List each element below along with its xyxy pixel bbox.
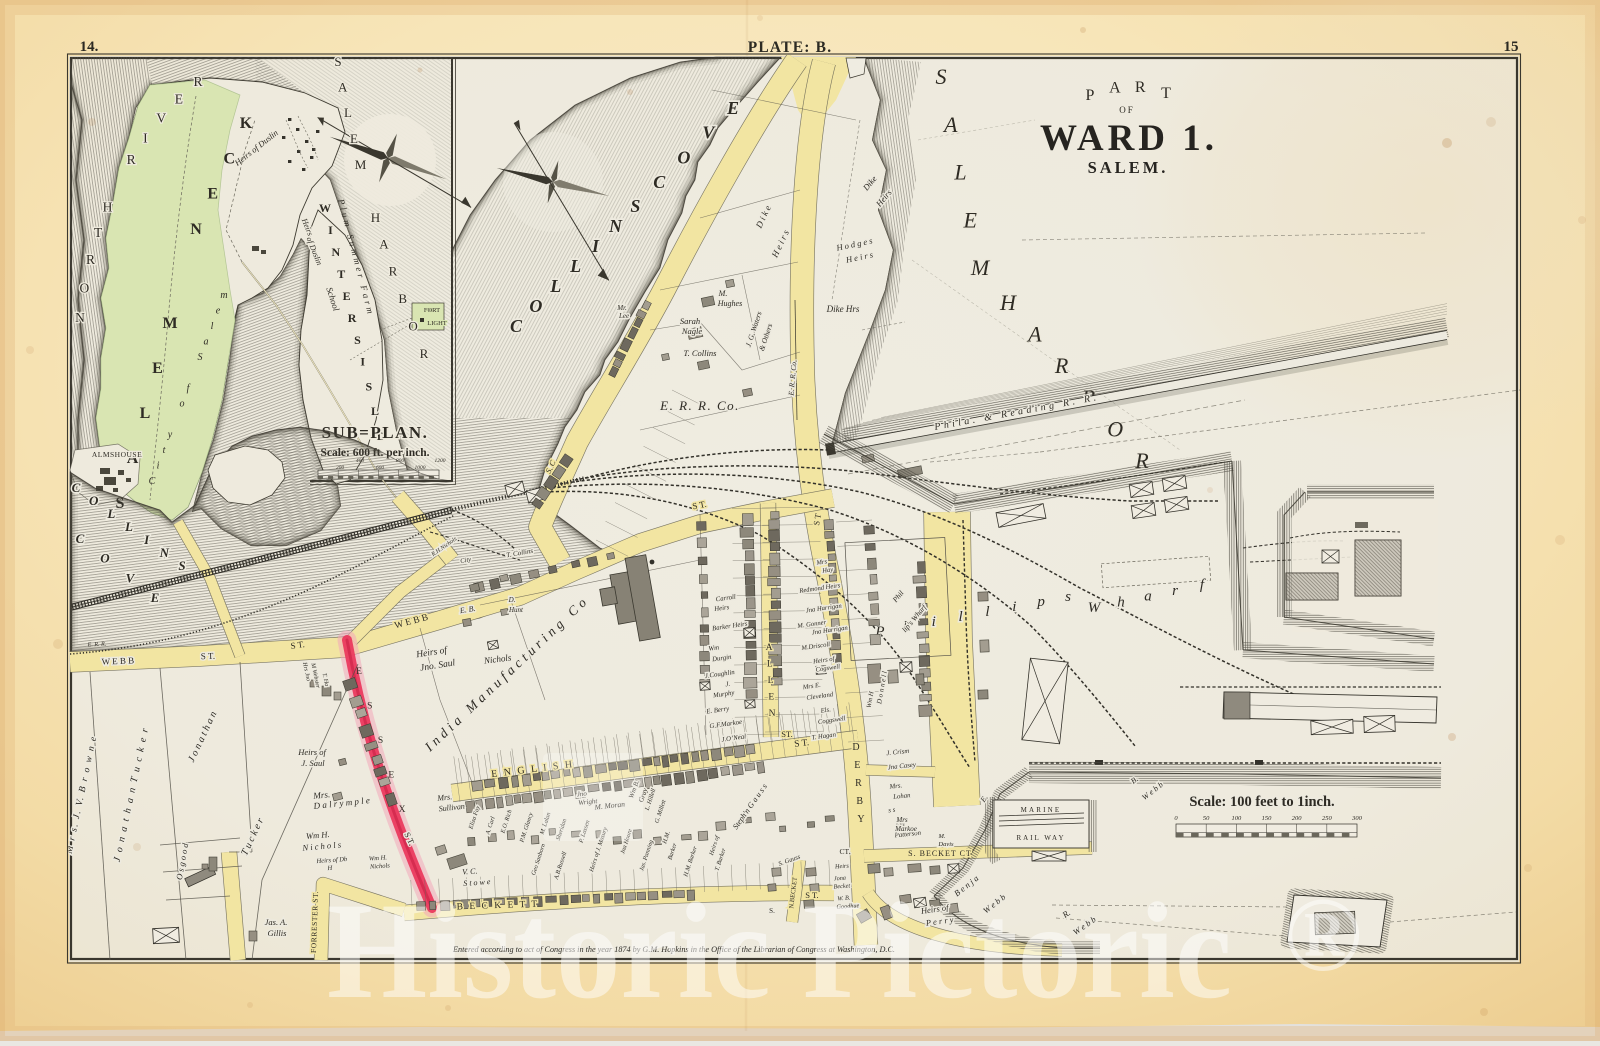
svg-text:V: V — [702, 123, 716, 143]
svg-text:M: M — [162, 315, 177, 332]
svg-text:S: S — [198, 352, 203, 363]
svg-text:A: A — [942, 112, 958, 137]
svg-text:T: T — [94, 225, 103, 240]
svg-text:C: C — [76, 531, 85, 546]
svg-text:M.: M. — [718, 289, 728, 298]
svg-text:s s: s s — [888, 807, 896, 815]
svg-text:WARD 1.: WARD 1. — [1040, 118, 1218, 159]
svg-text:50: 50 — [1203, 815, 1210, 822]
svg-text:E: E — [175, 91, 183, 106]
svg-text:OF: OF — [1119, 105, 1135, 115]
svg-text:Gillis: Gillis — [268, 928, 288, 938]
svg-text:R: R — [127, 152, 136, 167]
svg-text:S: S — [334, 54, 341, 69]
svg-text:300: 300 — [1351, 815, 1363, 822]
svg-text:y: y — [167, 430, 173, 441]
svg-text:h: h — [1117, 594, 1125, 610]
svg-text:i: i — [932, 614, 936, 630]
svg-text:150: 150 — [1262, 815, 1273, 822]
svg-text:R: R — [86, 252, 95, 267]
svg-text:N: N — [769, 709, 776, 719]
svg-text:E: E — [343, 289, 351, 303]
svg-text:Mr.: Mr. — [616, 304, 627, 312]
svg-text:E: E — [768, 693, 774, 703]
svg-text:Hughes: Hughes — [717, 299, 742, 308]
svg-text:L: L — [767, 660, 773, 670]
svg-text:L: L — [371, 404, 379, 418]
svg-text:J. Saul: J. Saul — [301, 758, 325, 768]
svg-text:s: s — [1065, 589, 1071, 605]
svg-text:M.: M. — [937, 833, 945, 840]
svg-text:E. R. R.: E. R. R. — [87, 642, 107, 649]
svg-text:ALMSHOUSE: ALMSHOUSE — [92, 450, 142, 459]
svg-text:K: K — [240, 115, 253, 132]
svg-text:p: p — [1036, 594, 1045, 610]
svg-text:t: t — [163, 445, 166, 456]
svg-text:A: A — [1109, 80, 1121, 97]
svg-text:S: S — [378, 736, 383, 746]
svg-text:P: P — [1086, 87, 1095, 104]
svg-text:l: l — [958, 609, 962, 625]
svg-text:MARINE: MARINE — [1021, 806, 1062, 814]
svg-text:o: o — [180, 399, 185, 410]
svg-text:a: a — [204, 337, 209, 348]
svg-text:C: C — [653, 172, 666, 192]
svg-text:L: L — [549, 276, 561, 296]
svg-text:S T.: S T. — [201, 651, 216, 661]
svg-text:H: H — [103, 199, 113, 214]
svg-text:H: H — [326, 865, 332, 872]
svg-text:S: S — [354, 333, 361, 347]
svg-text:T: T — [1161, 85, 1171, 102]
svg-text:O: O — [677, 147, 690, 167]
svg-text:O: O — [408, 318, 417, 333]
svg-text:M: M — [970, 255, 991, 280]
svg-text:ST.: ST. — [781, 729, 792, 739]
svg-text:Davis: Davis — [937, 841, 954, 848]
svg-text:O: O — [80, 280, 90, 295]
svg-text:T: T — [337, 267, 345, 281]
svg-text:R: R — [389, 264, 398, 279]
svg-text:D.: D. — [508, 596, 516, 604]
svg-text:S: S — [366, 379, 373, 393]
svg-text:i: i — [157, 461, 160, 472]
svg-text:R: R — [348, 311, 357, 325]
svg-text:I: I — [360, 355, 365, 369]
svg-text:S. BECKET CT: S. BECKET CT — [908, 849, 972, 858]
svg-text:m: m — [220, 290, 227, 301]
svg-text:A: A — [379, 237, 389, 252]
svg-text:N: N — [159, 545, 170, 560]
svg-text:L: L — [953, 160, 966, 185]
svg-text:l: l — [211, 321, 214, 332]
svg-text:C: C — [510, 316, 523, 336]
svg-text:E. R. R. Co.: E. R. R. Co. — [659, 398, 740, 413]
svg-text:A: A — [766, 643, 773, 653]
svg-text:B: B — [398, 291, 407, 306]
svg-text:l: l — [985, 604, 989, 620]
svg-text:a: a — [1144, 589, 1152, 605]
svg-text:E: E — [152, 360, 163, 377]
svg-text:Lee: Lee — [618, 312, 629, 320]
svg-text:W: W — [1088, 600, 1102, 616]
svg-text:RAIL WAY: RAIL WAY — [1017, 834, 1066, 842]
svg-text:O: O — [1107, 416, 1123, 441]
svg-text:A: A — [338, 79, 348, 94]
svg-text:R: R — [855, 778, 862, 789]
svg-text:W: W — [319, 201, 331, 215]
svg-text:E: E — [854, 760, 860, 771]
svg-text:Wm: Wm — [708, 644, 720, 652]
svg-text:®: ® — [1283, 876, 1362, 993]
svg-text:E: E — [356, 667, 362, 677]
svg-text:r: r — [1172, 583, 1178, 599]
svg-text:Mrs.: Mrs. — [888, 782, 903, 790]
svg-text:L: L — [124, 519, 133, 534]
svg-text:L: L — [106, 506, 115, 521]
svg-text:LIGHT: LIGHT — [427, 320, 447, 327]
svg-text:C: C — [149, 476, 156, 487]
svg-text:Historic Pictoric: Historic Pictoric — [327, 874, 1232, 1027]
svg-text:O: O — [529, 296, 542, 316]
svg-text:I: I — [143, 532, 150, 547]
svg-text:H: H — [371, 210, 380, 225]
svg-text:E: E — [350, 131, 358, 146]
svg-text:Hunt: Hunt — [508, 606, 524, 614]
svg-text:N: N — [75, 310, 85, 325]
svg-text:1200: 1200 — [435, 458, 446, 464]
svg-text:V: V — [156, 110, 166, 125]
svg-text:Sarah: Sarah — [680, 316, 700, 326]
svg-text:N: N — [608, 216, 623, 236]
svg-text:Scale: 100 feet to 1inch.: Scale: 100 feet to 1inch. — [1189, 794, 1334, 810]
svg-text:E: E — [963, 207, 978, 232]
svg-text:L: L — [569, 256, 581, 276]
svg-text:Nagle: Nagle — [681, 326, 703, 336]
svg-text:Dike Hrs: Dike Hrs — [826, 304, 860, 314]
svg-text:E: E — [388, 771, 394, 781]
svg-text:T. Collins: T. Collins — [684, 348, 718, 358]
svg-text:V: V — [126, 570, 136, 585]
svg-text:Heirs: Heirs — [834, 862, 850, 870]
svg-text:E: E — [726, 98, 739, 118]
svg-text:W E B B: W E B B — [101, 655, 134, 666]
svg-text:Mrs: Mrs — [895, 816, 908, 824]
svg-text:Wm H.: Wm H. — [306, 829, 330, 841]
svg-text:S T.: S T. — [290, 639, 305, 651]
svg-text:R: R — [1054, 353, 1069, 378]
svg-text:O: O — [100, 551, 110, 566]
svg-text:Mrs.: Mrs. — [436, 792, 453, 803]
svg-text:X: X — [399, 805, 406, 815]
svg-text:R: R — [1135, 79, 1146, 96]
svg-text:250: 250 — [1322, 815, 1333, 822]
svg-text:S: S — [178, 558, 185, 573]
svg-text:15: 15 — [1504, 39, 1519, 55]
svg-text:M: M — [355, 157, 367, 172]
svg-text:N: N — [190, 221, 202, 238]
svg-text:S T.: S T. — [794, 738, 810, 750]
svg-text:14.: 14. — [80, 39, 99, 55]
svg-text:CT.: CT. — [840, 847, 851, 856]
svg-text:Y: Y — [857, 814, 864, 825]
svg-text:I: I — [143, 131, 148, 146]
svg-text:E: E — [150, 590, 160, 605]
svg-text:i: i — [1012, 599, 1016, 615]
svg-text:C: C — [72, 480, 81, 495]
svg-text:E: E — [207, 186, 218, 203]
svg-text:N: N — [331, 245, 340, 259]
svg-text:B: B — [856, 796, 863, 807]
svg-text:O: O — [89, 493, 99, 508]
svg-text:L: L — [768, 676, 774, 686]
svg-text:R: R — [193, 74, 202, 89]
svg-text:FORT: FORT — [424, 307, 440, 314]
svg-text:R: R — [420, 346, 429, 361]
svg-text:H: H — [999, 290, 1017, 315]
svg-text:I: I — [328, 223, 333, 237]
svg-text:S: S — [367, 702, 372, 712]
svg-text:Markoe: Markoe — [894, 825, 917, 833]
svg-text:100: 100 — [1231, 815, 1242, 822]
svg-text:D: D — [852, 742, 859, 753]
svg-text:Wm H.: Wm H. — [369, 854, 388, 862]
svg-text:S: S — [630, 196, 640, 216]
svg-text:Nichols: Nichols — [369, 862, 391, 870]
svg-text:200: 200 — [1292, 815, 1303, 822]
svg-text:Heirs of: Heirs of — [297, 747, 327, 757]
svg-text:PLATE: B.: PLATE: B. — [748, 39, 833, 56]
svg-text:L: L — [344, 105, 352, 120]
svg-text:L: L — [140, 405, 151, 422]
svg-text:S: S — [936, 64, 947, 89]
svg-text:Jas. A.: Jas. A. — [265, 917, 288, 927]
svg-text:e: e — [216, 306, 221, 317]
svg-text:SALEM.: SALEM. — [1088, 158, 1169, 177]
